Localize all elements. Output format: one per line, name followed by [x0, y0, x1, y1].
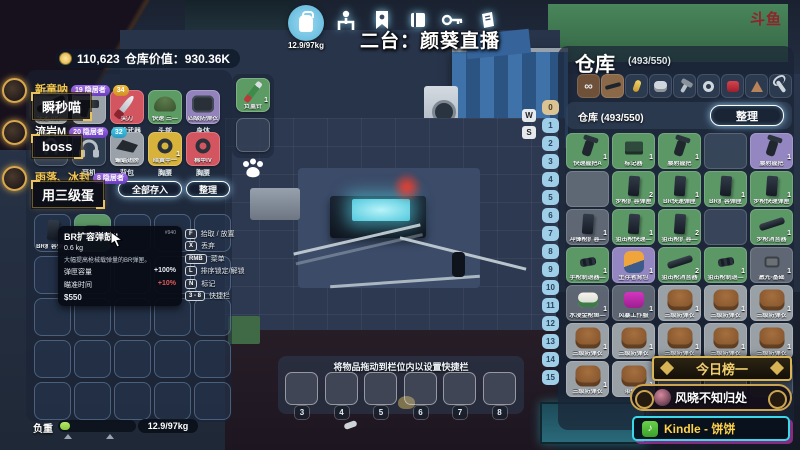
- world-side-table: [250, 188, 300, 220]
- keybind-label: 标记: [201, 279, 215, 289]
- keybind-label: 丢弃: [201, 241, 215, 251]
- item-name: 步枪扩容弹匣: [613, 199, 654, 206]
- row-number-7[interactable]: 7: [542, 226, 559, 241]
- pack-icon: [624, 251, 644, 273]
- row-number-0[interactable]: 0: [542, 100, 559, 115]
- stream-title: 二台：颜葵直播: [300, 26, 560, 53]
- pocket-slot-empty[interactable]: [236, 118, 270, 152]
- chat-message-text: boss: [32, 135, 82, 158]
- warehouse-cell[interactable]: 1风暴工作服: [612, 285, 655, 321]
- item-name: 快速握把A: [567, 161, 608, 168]
- warehouse-cell[interactable]: 1激光-基础: [750, 247, 793, 283]
- row-number-4[interactable]: 4: [542, 172, 559, 187]
- tooltip-description: 大幅提高枪械载弹量的BR弹匣。: [64, 255, 176, 264]
- warehouse-cell[interactable]: 1三级防弹衣: [658, 323, 701, 359]
- meat-filter-icon: [727, 81, 739, 92]
- mag-icon: [719, 176, 731, 197]
- inventory-cell[interactable]: [194, 382, 231, 420]
- item-name: BR快速弹匣: [659, 199, 700, 206]
- sort-inventory-button[interactable]: 整理: [186, 181, 230, 197]
- warehouse-cell[interactable]: 1步枪快速弹匣: [750, 171, 793, 207]
- item-count: 1: [603, 268, 607, 275]
- item-count: 1: [787, 306, 791, 313]
- equipment-slot-label: 胸腰: [181, 168, 225, 178]
- pocket-slot-item[interactable]: 1 负重针: [236, 78, 270, 112]
- warehouse-count: (493/550): [628, 56, 671, 67]
- row-number-14[interactable]: 14: [542, 352, 559, 367]
- syringe-icon: [243, 81, 263, 104]
- backpack-button[interactable]: [288, 5, 324, 41]
- item-name: 水浸金枪鱼—: [567, 313, 608, 320]
- warehouse-cell[interactable]: 1BR扩容弹匣: [704, 171, 747, 207]
- item-name: 步枪消音器: [751, 237, 792, 244]
- row-number-6[interactable]: 6: [542, 208, 559, 223]
- amulet-icon: [196, 139, 211, 154]
- key-cap: 3 - 8: [185, 291, 205, 301]
- warehouse-cell[interactable]: 1三级防弹衣: [750, 323, 793, 359]
- packdark-icon: [116, 140, 138, 153]
- scroll-key-W: W: [522, 109, 536, 122]
- keybind-label: 拾取 / 放置: [201, 229, 235, 239]
- warehouse-cell[interactable]: [704, 209, 747, 245]
- warehouse-cell[interactable]: 1冲锋枪扩容—: [566, 209, 609, 245]
- backpack-icon: [299, 15, 313, 32]
- vest-filter-icon: [654, 81, 667, 92]
- equipment-slot[interactable]: 快速 三—: [148, 90, 182, 124]
- item-count: 1: [603, 154, 607, 161]
- keybind-row: RMB菜单: [185, 254, 225, 264]
- daily-top-banner: 今日榜一: [652, 356, 792, 381]
- filter-tab-wrench[interactable]: [769, 74, 792, 98]
- hotbar-slot-8[interactable]: [483, 372, 516, 405]
- item-name: 手枪制退器—: [567, 275, 608, 282]
- rod-icon: [758, 217, 785, 232]
- item-name: 四级防弹衣: [187, 116, 219, 123]
- item-count: 1: [695, 192, 699, 199]
- grip-icon: [765, 139, 779, 157]
- mag-icon: [765, 176, 777, 197]
- rifle-filter-icon: [604, 82, 620, 90]
- item-count: 1: [741, 306, 745, 313]
- item-name: 蝙蝠翅膀: [111, 158, 143, 165]
- keybind-row: F拾取 / 放置: [185, 229, 235, 239]
- item-count: 1: [787, 154, 791, 161]
- inventory-cell[interactable]: [194, 298, 231, 336]
- warehouse-value: 仓库价值：930.36K: [125, 50, 230, 67]
- weight-value: 12.9/97kg: [138, 419, 198, 433]
- item-name: BR扩容弹匣: [705, 199, 746, 206]
- marker-icon: [625, 142, 643, 155]
- magazine-icon: [46, 220, 58, 241]
- item-count: 1: [787, 344, 791, 351]
- filter-tab-ring[interactable]: [697, 74, 720, 98]
- warehouse-cell[interactable]: 1标记器: [612, 133, 655, 169]
- mag-icon: [627, 214, 639, 235]
- item-count: 1: [649, 306, 653, 313]
- hotbar-slot-number: 7: [453, 406, 467, 419]
- item-count: 1: [787, 192, 791, 199]
- weight-marker: [64, 434, 72, 439]
- item-count: 1: [603, 306, 607, 313]
- row-number-3[interactable]: 3: [542, 154, 559, 169]
- item-name: 冲锋枪扩容—: [567, 237, 608, 244]
- item-name: 三级防弹衣: [567, 389, 608, 396]
- item-name: 狙击枪消音器: [659, 275, 700, 282]
- item-count: 2: [695, 268, 699, 275]
- keybind-row: L排序锁定/解锁: [185, 266, 245, 276]
- mag-icon: [673, 214, 685, 235]
- stat-value: +10%: [158, 280, 176, 290]
- mag-icon: [673, 176, 685, 197]
- inventory-cell[interactable]: [74, 340, 111, 378]
- subscriber-name: Kindle - 饼饼: [664, 420, 735, 437]
- weight-bar: [58, 420, 136, 432]
- item-count: 1: [741, 344, 745, 351]
- weight-bar-fill: [60, 422, 70, 430]
- world-computer-screen: [352, 199, 410, 221]
- warehouse-cell[interactable]: 1狙击枪制退—: [704, 247, 747, 283]
- item-count: 2: [649, 192, 653, 199]
- item-count: 1: [695, 344, 699, 351]
- item-count: 1: [695, 306, 699, 313]
- item-name: 腰射握把: [751, 161, 792, 168]
- paw-icon: [240, 156, 266, 182]
- tooltip-price: $550: [64, 293, 176, 302]
- amulet-icon: [158, 139, 173, 154]
- filter-tab-hammer[interactable]: [673, 74, 696, 98]
- inventory-cell[interactable]: [154, 382, 191, 420]
- mag-icon: [581, 214, 593, 235]
- row-number-15[interactable]: 15: [542, 370, 559, 385]
- item-name: 腰射握把: [659, 161, 700, 168]
- item-count: 1: [787, 268, 791, 275]
- item-count: 2: [695, 230, 699, 237]
- equipment-slot[interactable]: 棉甲IV: [186, 132, 220, 166]
- filter-tab-vest[interactable]: [649, 74, 672, 98]
- avatar: [2, 78, 27, 103]
- world-green-crate: [228, 316, 260, 344]
- vest-icon: [759, 328, 784, 349]
- warehouse-cell[interactable]: 1三级防弹衣: [750, 285, 793, 321]
- keybind-row: X丢弃: [185, 241, 215, 251]
- warehouse-cell[interactable]: [704, 133, 747, 169]
- music-app-icon: ♪: [642, 421, 658, 437]
- row-number-1[interactable]: 1: [542, 118, 559, 133]
- item-name: 负重针: [237, 104, 269, 111]
- ring-filter-icon: [703, 81, 714, 92]
- stat-label: 瞄准时间: [64, 280, 92, 290]
- row-number-9[interactable]: 9: [542, 262, 559, 277]
- item-name: 三级防弹衣: [659, 313, 700, 320]
- daily-top-username: 风晓不知归处: [675, 389, 747, 406]
- item-name: 标记器: [613, 161, 654, 168]
- item-count: 1: [787, 230, 791, 237]
- vest-icon: [713, 328, 738, 349]
- item-name: 三级防弹衣: [613, 351, 654, 358]
- key-cap: F: [185, 229, 197, 239]
- item-count: 1: [649, 154, 653, 161]
- avatar: [654, 389, 671, 406]
- item-name: 三级防弹衣: [567, 351, 608, 358]
- warehouse-cell[interactable]: 1BR快速弹匣: [658, 171, 701, 207]
- tooltip-stats: 弹匣容量+100%瞄准时间+10%: [64, 267, 176, 290]
- bodyarmor-icon: [192, 96, 214, 113]
- keybind-label: 排序锁定/解锁: [201, 266, 245, 276]
- wrench-filter-icon: [775, 80, 786, 93]
- warehouse-cell[interactable]: 1三级防弹衣: [566, 323, 609, 359]
- avatar: [2, 166, 27, 191]
- item-count: 1: [603, 344, 607, 351]
- filter-tab-all[interactable]: ∞: [577, 74, 600, 98]
- hammer-filter-icon: [680, 79, 690, 92]
- item-name: 狙击枪扩容—: [659, 237, 700, 244]
- row-number-12[interactable]: 12: [542, 316, 559, 331]
- money-display: 110,623 仓库价值：930.36K: [55, 49, 240, 68]
- stat-value: +100%: [154, 267, 176, 277]
- warehouse-cell[interactable]: 2狙击枪扩容—: [658, 209, 701, 245]
- warehouse-cell[interactable]: 1水浸金枪鱼—: [566, 285, 609, 321]
- item-count: 1: [741, 192, 745, 199]
- row-number-8[interactable]: 8: [542, 244, 559, 259]
- item-name: 激光-基础: [751, 275, 792, 282]
- warehouse-cell[interactable]: 1狙击枪快速—: [612, 209, 655, 245]
- item-count: 1: [695, 154, 699, 161]
- keybind-row: N标记: [185, 279, 215, 289]
- hotbar-slot-5[interactable]: [364, 372, 397, 405]
- muzzle-icon: [579, 257, 596, 268]
- inventory-cell[interactable]: [34, 382, 71, 420]
- warehouse-cell[interactable]: 1手枪制退器—: [566, 247, 609, 283]
- inventory-cell[interactable]: [34, 340, 71, 378]
- warehouse-cell[interactable]: 1三级防弹衣: [612, 323, 655, 359]
- tooltip-stat-row: 瞄准时间+10%: [64, 280, 176, 290]
- weight-marker: [106, 434, 114, 439]
- chat-message-text: 瞬秒喵: [32, 93, 91, 120]
- warehouse-title: 仓库: [575, 48, 615, 77]
- item-name: 狙击枪制退—: [705, 275, 746, 282]
- item-name: 生存者背包: [613, 275, 654, 282]
- laser-icon: [764, 257, 779, 268]
- item-count: 1: [603, 382, 607, 389]
- vest-icon: [713, 290, 738, 311]
- stat-label: 弹匣容量: [64, 267, 92, 277]
- item-name: 狙击枪快速—: [613, 237, 654, 244]
- tooltip-id: #940: [165, 230, 176, 236]
- hotbar-slot-number: 5: [374, 406, 388, 419]
- weight-label: 负重: [33, 420, 53, 435]
- warehouse-cell[interactable]: 2步枪扩容弹匣: [612, 171, 655, 207]
- muzzle-icon: [717, 257, 734, 268]
- keybind-row: 3 - 8快捷栏: [185, 291, 230, 301]
- row-number-13[interactable]: 13: [542, 334, 559, 349]
- warehouse-cell[interactable]: 1三级防弹衣: [658, 285, 701, 321]
- equipment-slot[interactable]: 四级防弹衣: [186, 90, 220, 124]
- chat-message-text: 用三级蛋: [32, 181, 104, 208]
- pet-paw-button[interactable]: [240, 156, 266, 187]
- warehouse-cell[interactable]: 1三级防弹衣: [566, 361, 609, 397]
- inventory-cell[interactable]: [154, 340, 191, 378]
- warehouse-cell[interactable]: 1快速握把A: [566, 133, 609, 169]
- warehouse-cell[interactable]: 1步枪消音器: [750, 209, 793, 245]
- vest-icon: [759, 290, 784, 311]
- warehouse-cell[interactable]: 1生存者背包: [612, 247, 655, 283]
- filter-tab-ammo[interactable]: [625, 74, 648, 98]
- daily-top-user-banner: 风晓不知归处: [630, 384, 792, 411]
- item-name: 步枪快速弹匣: [751, 199, 792, 206]
- key-cap: RMB: [185, 254, 207, 264]
- key-cap: L: [185, 266, 197, 276]
- world-character: [452, 252, 465, 277]
- item-count: 1: [649, 344, 653, 351]
- warehouse-cell[interactable]: 1三级防弹衣: [704, 285, 747, 321]
- money-amount: 110,623: [77, 52, 120, 66]
- mag-icon: [627, 176, 639, 197]
- warehouse-subtitle: 仓库 (493/550): [578, 109, 644, 124]
- mouse-cursor: [110, 231, 123, 253]
- rod-icon: [666, 255, 693, 270]
- game-screen: 110,623 仓库价值：930.36K 12.9/97kg 二台：颜葵直播 斗…: [0, 0, 800, 450]
- hotbar-hint: 将物品拖动到栏位内以设置快捷栏: [278, 360, 524, 373]
- inventory-cell[interactable]: [194, 340, 231, 378]
- warehouse-cell[interactable]: 1腰射握把: [750, 133, 793, 169]
- hotbar-slot-3[interactable]: [285, 372, 318, 405]
- vest-icon: [667, 328, 692, 349]
- keybind-label: 菜单: [211, 254, 225, 264]
- item-name: 快速 三—: [149, 116, 181, 123]
- scroll-key-S: S: [522, 126, 536, 139]
- inventory-cell[interactable]: [114, 340, 151, 378]
- fan-badge: 32: [111, 127, 127, 138]
- item-name: 暗黄甲一: [149, 158, 181, 165]
- key-icon: [441, 13, 463, 27]
- warehouse-cell[interactable]: 1腰射握把: [658, 133, 701, 169]
- hotbar-slot-6[interactable]: [404, 372, 437, 405]
- carry-weight-top: 12.9/97kg: [276, 41, 336, 50]
- equipment-slot[interactable]: 1暗黄甲一: [148, 132, 182, 166]
- helmet-icon: [154, 97, 176, 112]
- key-cap: N: [185, 279, 197, 289]
- avatar: [2, 120, 27, 145]
- ammo-filter-icon: [632, 79, 642, 92]
- hotbar-slot-number: 6: [414, 406, 428, 419]
- filter-tab-meat[interactable]: [721, 74, 744, 98]
- hotbar-slot-4[interactable]: [325, 372, 358, 405]
- grip-icon: [673, 139, 687, 157]
- world-red-lamp-glow: [392, 172, 422, 202]
- item-name: 三级防弹衣: [705, 313, 746, 320]
- row-number-10[interactable]: 10: [542, 280, 559, 295]
- vest-icon: [575, 366, 600, 387]
- tooltip-stat-row: 弹匣容量+100%: [64, 267, 176, 277]
- suit-icon: [624, 292, 644, 308]
- can-icon: [578, 293, 598, 308]
- cake-filter-icon: [751, 81, 763, 92]
- hotbar-slot-number: 8: [493, 406, 507, 419]
- key-cap: X: [185, 241, 197, 251]
- subscriber-banner: ♪ Kindle - 饼饼: [632, 416, 790, 441]
- filter-tab-rifle[interactable]: [601, 74, 624, 98]
- hotbar-slot-number: 4: [335, 406, 349, 419]
- grip-icon: [581, 139, 595, 157]
- item-count: 1: [741, 268, 745, 275]
- item-name: 三级防弹衣: [751, 313, 792, 320]
- inventory-cell[interactable]: [74, 382, 111, 420]
- hotbar-slot-7[interactable]: [443, 372, 476, 405]
- hotbar-slot-number: 3: [295, 406, 309, 419]
- inventory-cell[interactable]: [114, 382, 151, 420]
- vest-icon: [575, 328, 600, 349]
- sort-warehouse-button[interactable]: 整理: [710, 105, 784, 126]
- warehouse-cell[interactable]: [566, 171, 609, 207]
- item-name: 风暴工作服: [613, 313, 654, 320]
- item-count: 1: [649, 268, 653, 275]
- platform-watermark: 斗鱼: [750, 8, 782, 29]
- row-number-2[interactable]: 2: [542, 136, 559, 151]
- warehouse-cell[interactable]: 1三级防弹衣: [704, 323, 747, 359]
- coin-icon: [59, 52, 72, 65]
- item-count: 1: [264, 97, 268, 104]
- filter-tab-cake[interactable]: [745, 74, 768, 98]
- fan-badge: 34: [113, 85, 129, 96]
- item-name: 棉甲IV: [187, 158, 219, 165]
- keybind-label: 快捷栏: [209, 291, 230, 301]
- vest-icon: [621, 328, 646, 349]
- vest-icon: [667, 290, 692, 311]
- item-count: 1: [649, 230, 653, 237]
- row-number-11[interactable]: 11: [542, 298, 559, 313]
- item-count: 1: [603, 230, 607, 237]
- warehouse-cell[interactable]: 2狙击枪消音器: [658, 247, 701, 283]
- row-number-5[interactable]: 5: [542, 190, 559, 205]
- item-count: 1: [176, 151, 180, 158]
